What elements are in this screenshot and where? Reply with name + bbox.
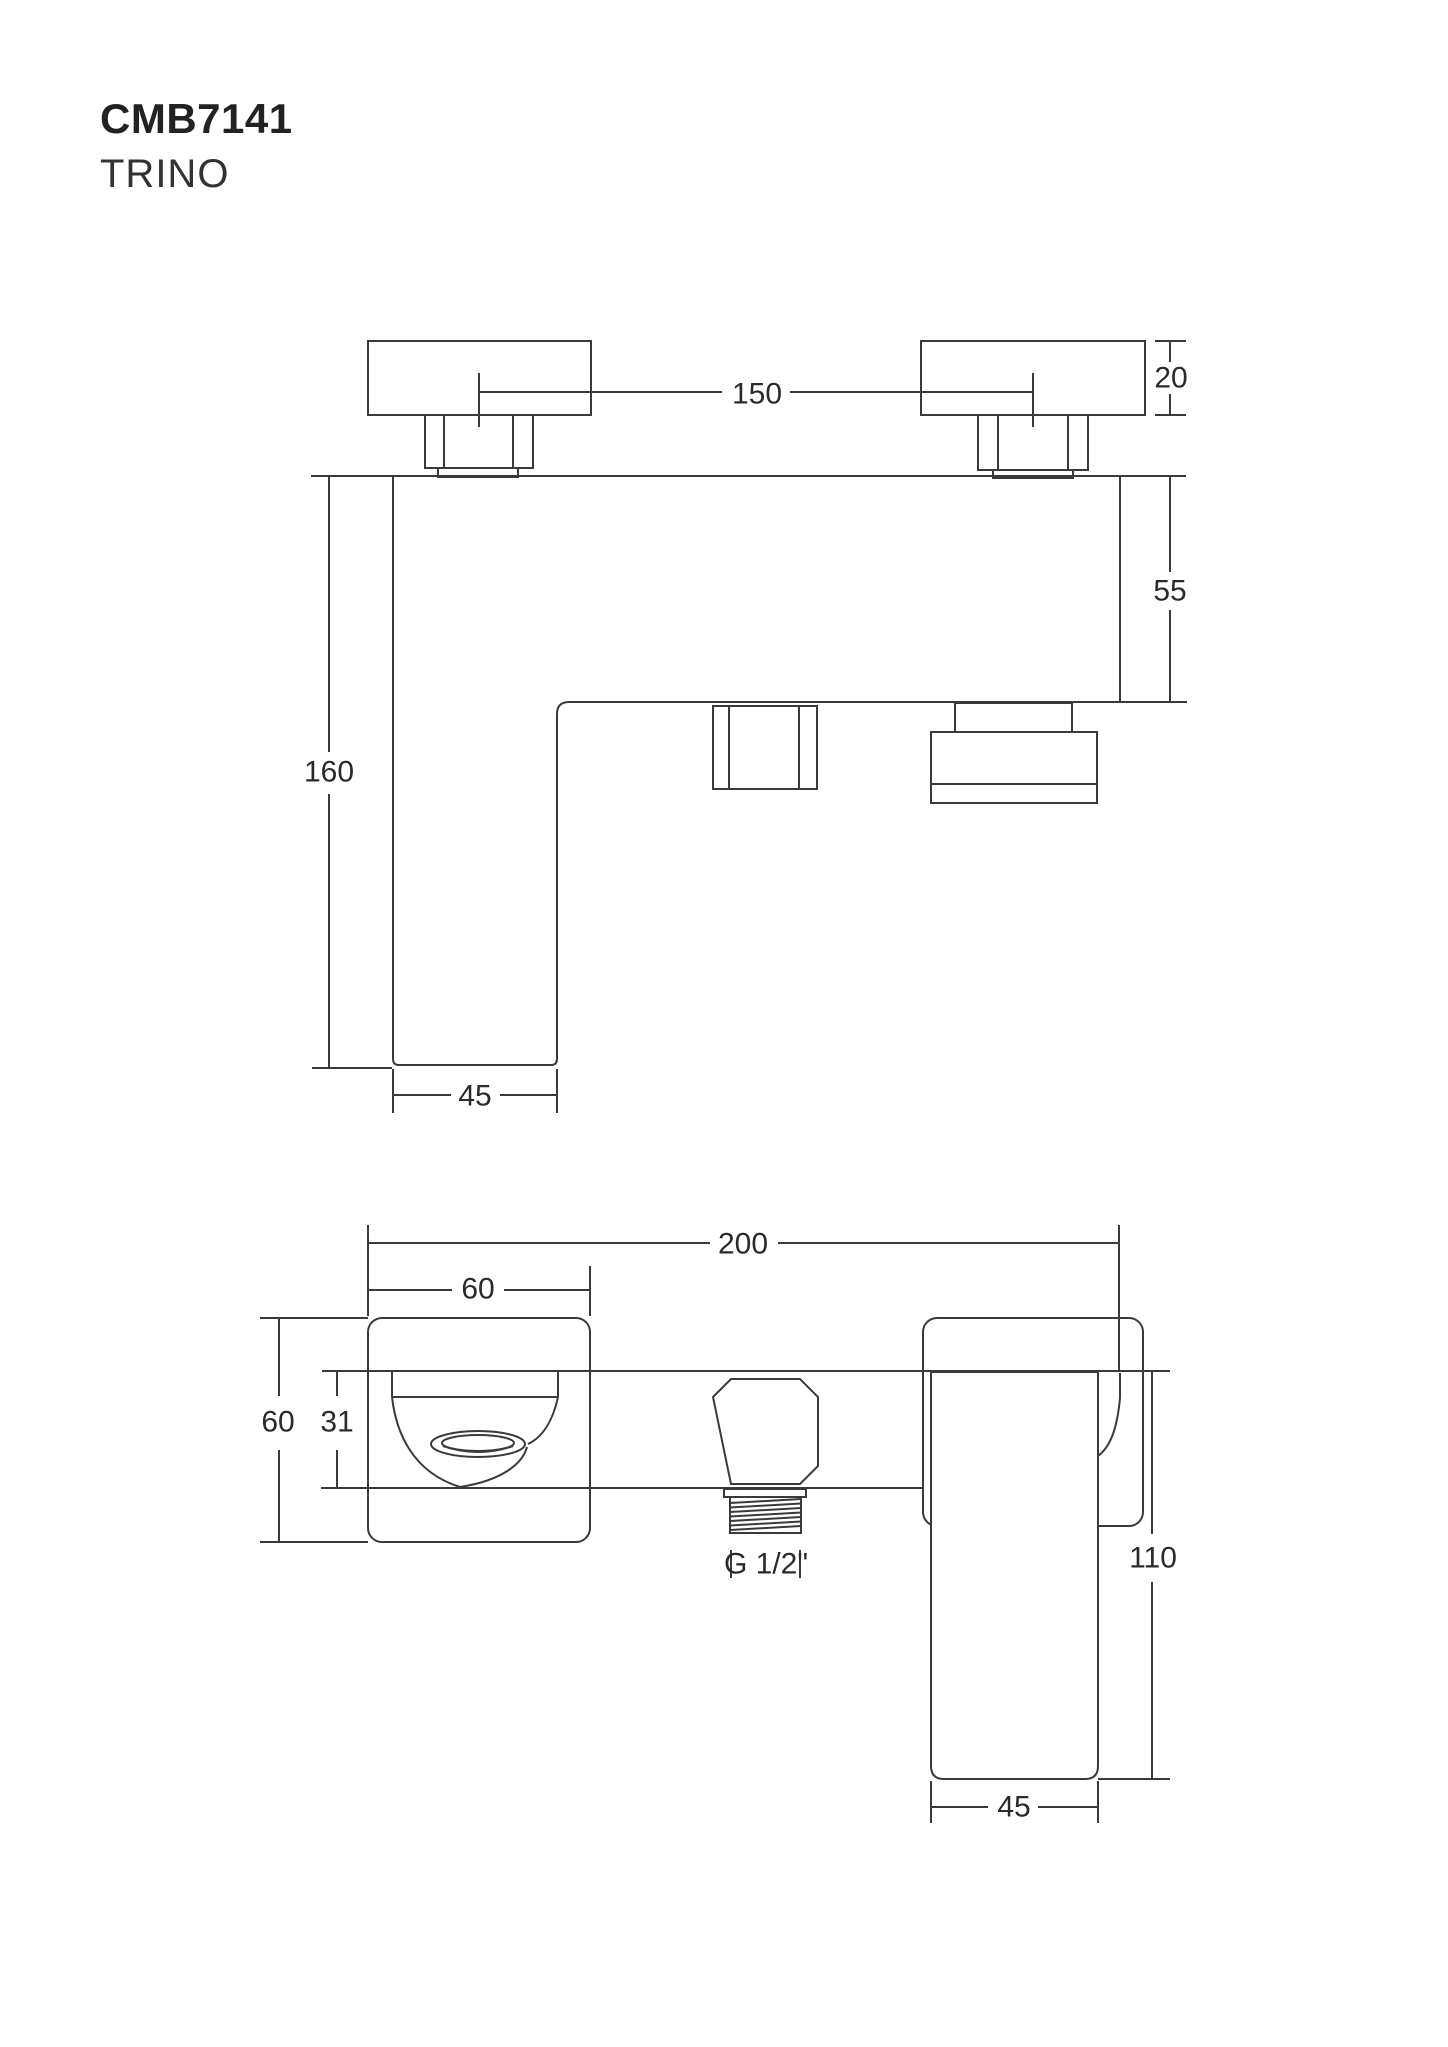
dim-31: 31 <box>320 1371 353 1488</box>
dim-60-width: 60 <box>368 1266 590 1316</box>
dim-160-label: 160 <box>304 756 354 789</box>
dim-31-label: 31 <box>320 1406 353 1439</box>
dim-thread: G 1/2" <box>724 1548 808 1581</box>
dim-60-width-label: 60 <box>461 1273 494 1306</box>
dim-20-label: 20 <box>1154 362 1187 395</box>
dim-thread-label: G 1/2" <box>724 1548 808 1581</box>
lever-handle-curve <box>1098 1373 1120 1456</box>
dim-150-label: 150 <box>732 378 782 411</box>
dim-200-label: 200 <box>718 1228 768 1261</box>
technical-drawing: 150 20 55 160 45 <box>0 0 1448 2047</box>
thread-connector <box>724 1489 806 1533</box>
front-view: 200 60 60 31 G 1/2" <box>260 1225 1177 1824</box>
dim-45-side-label: 45 <box>458 1080 491 1113</box>
dim-45-front: 45 <box>931 1781 1098 1824</box>
dim-55-label: 55 <box>1153 575 1186 608</box>
lever-handle <box>931 1372 1098 1779</box>
dim-110: 110 <box>1098 1371 1177 1779</box>
front-left-flange <box>368 1318 590 1542</box>
dim-110-label: 110 <box>1129 1542 1177 1575</box>
dim-160: 160 <box>304 476 392 1068</box>
dim-60-height-label: 60 <box>261 1406 294 1439</box>
shower-outlet <box>931 703 1097 803</box>
dim-45-side: 45 <box>393 1069 557 1113</box>
spout-cup <box>392 1371 558 1487</box>
dim-20: 20 <box>1154 341 1187 415</box>
diverter-octagon <box>713 1379 818 1484</box>
dim-150: 150 <box>479 378 1033 411</box>
dim-45-front-label: 45 <box>997 1791 1030 1824</box>
mixer-body-outline <box>393 476 1120 1065</box>
side-view: 150 20 55 160 45 <box>304 341 1188 1113</box>
diverter-knob <box>713 706 817 789</box>
datasheet-page: CMB7141 TRINO <box>0 0 1448 2047</box>
dim-55: 55 <box>1120 476 1187 702</box>
